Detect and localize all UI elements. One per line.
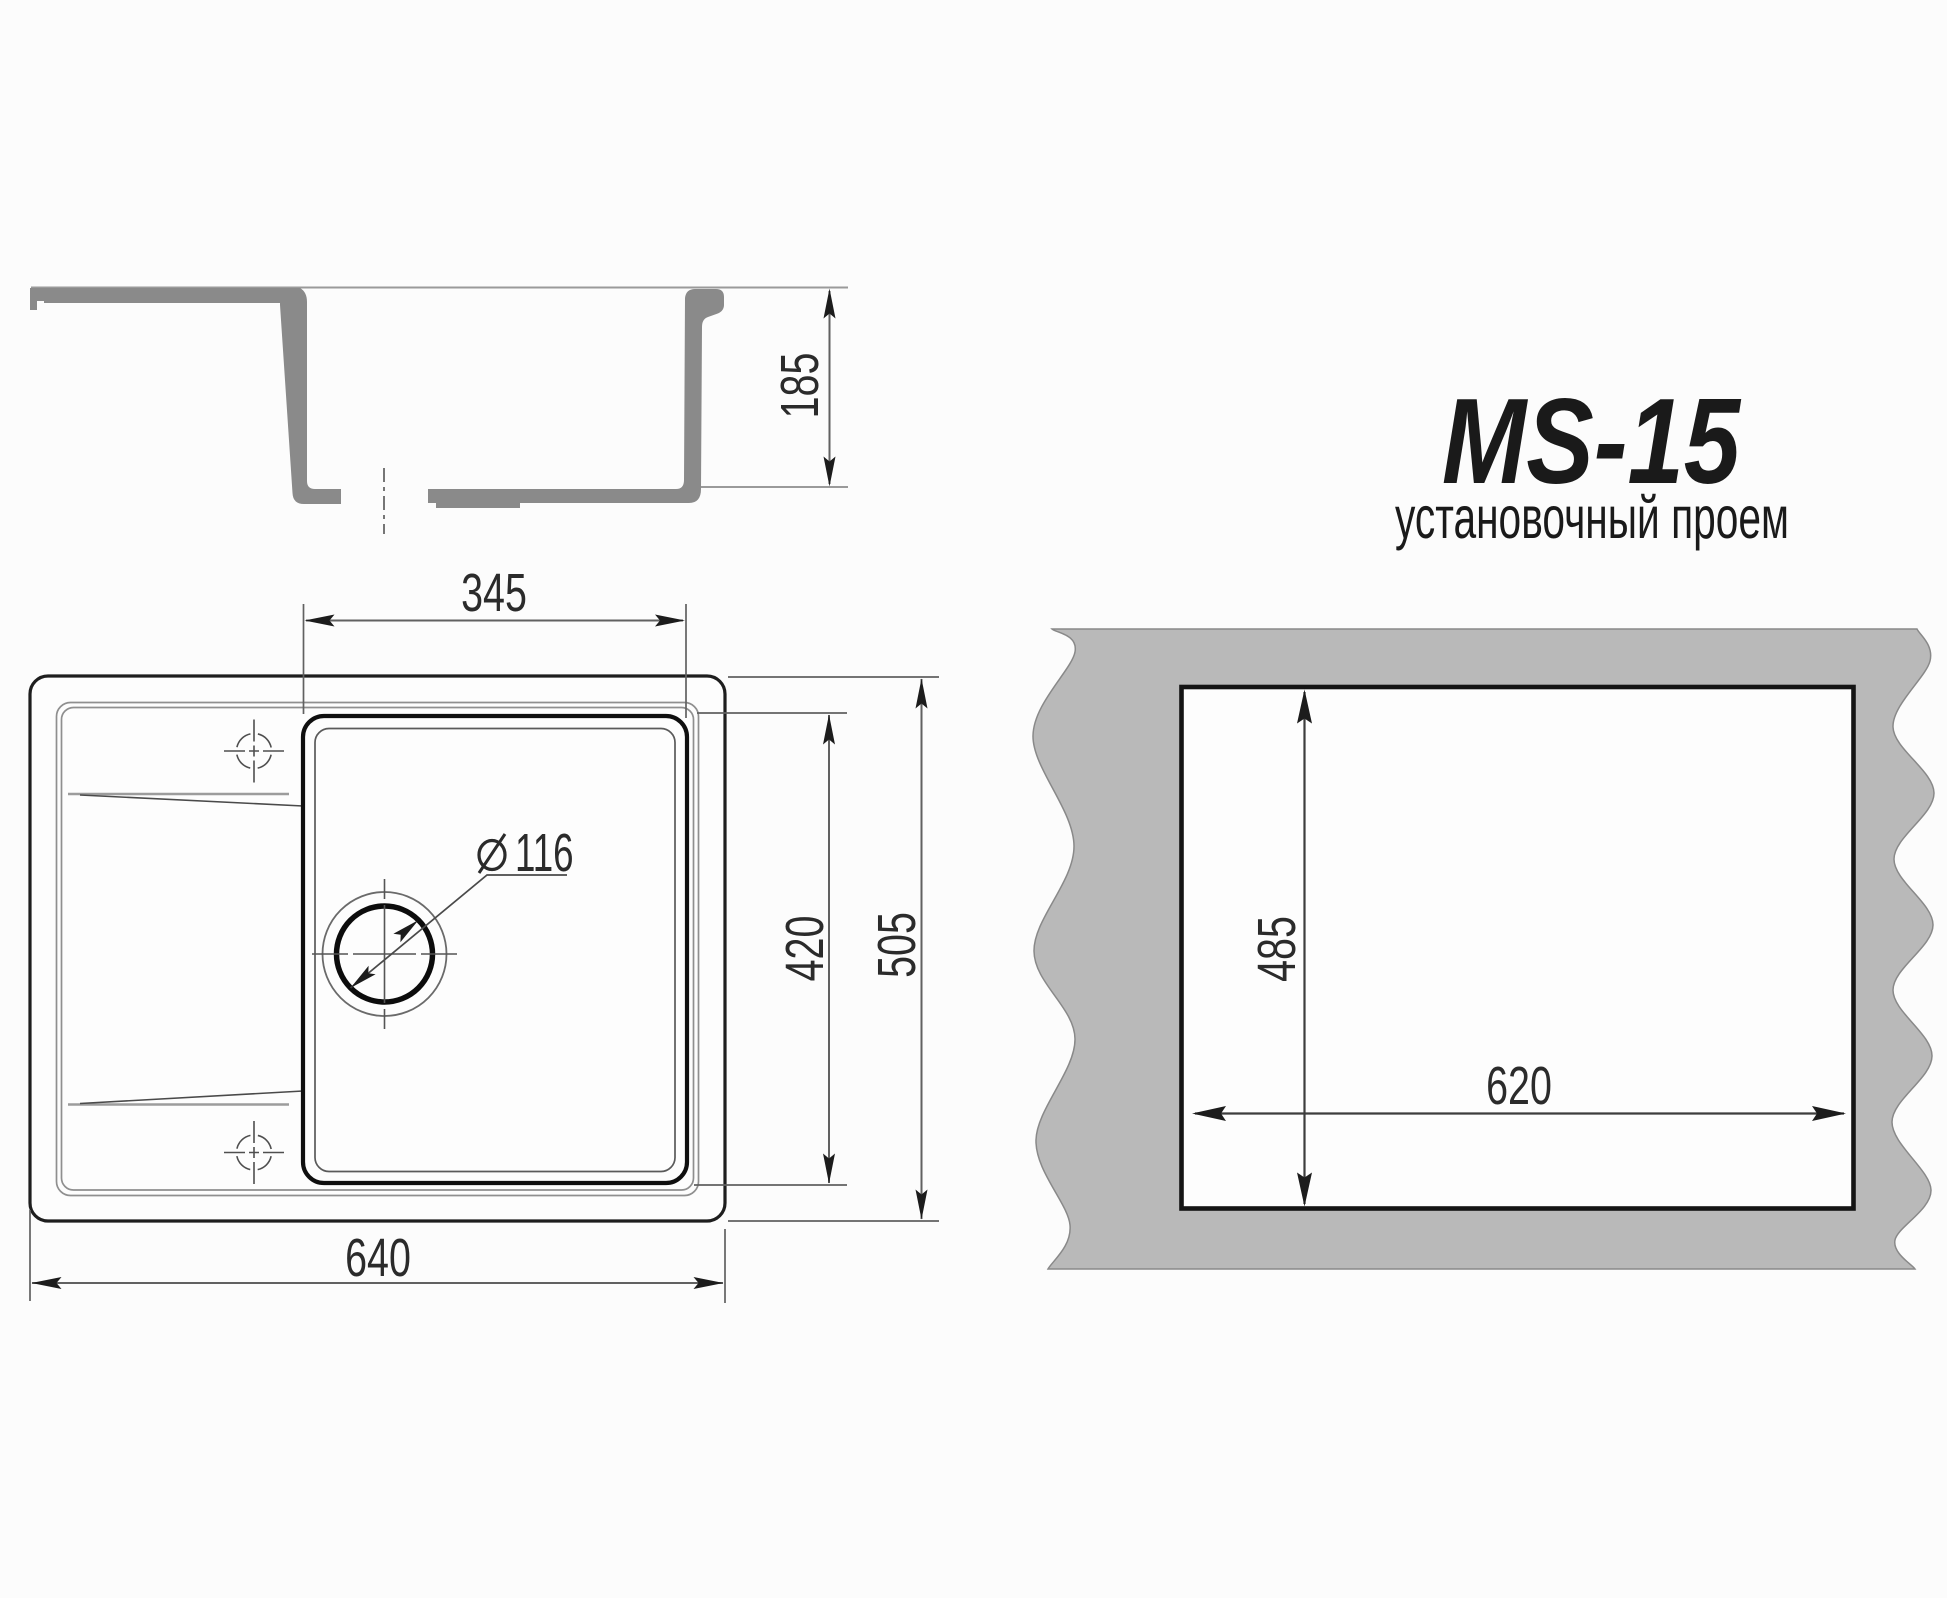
svg-text:485: 485 xyxy=(1247,916,1308,982)
svg-text:640: 640 xyxy=(345,1228,411,1289)
svg-text:420: 420 xyxy=(775,916,836,982)
svg-text:345: 345 xyxy=(461,563,527,624)
svg-text:620: 620 xyxy=(1486,1056,1552,1117)
svg-text:установочный проем: установочный проем xyxy=(1395,484,1789,550)
svg-text:185: 185 xyxy=(770,353,831,419)
svg-text:505: 505 xyxy=(867,912,928,978)
svg-text:116: 116 xyxy=(515,822,574,883)
